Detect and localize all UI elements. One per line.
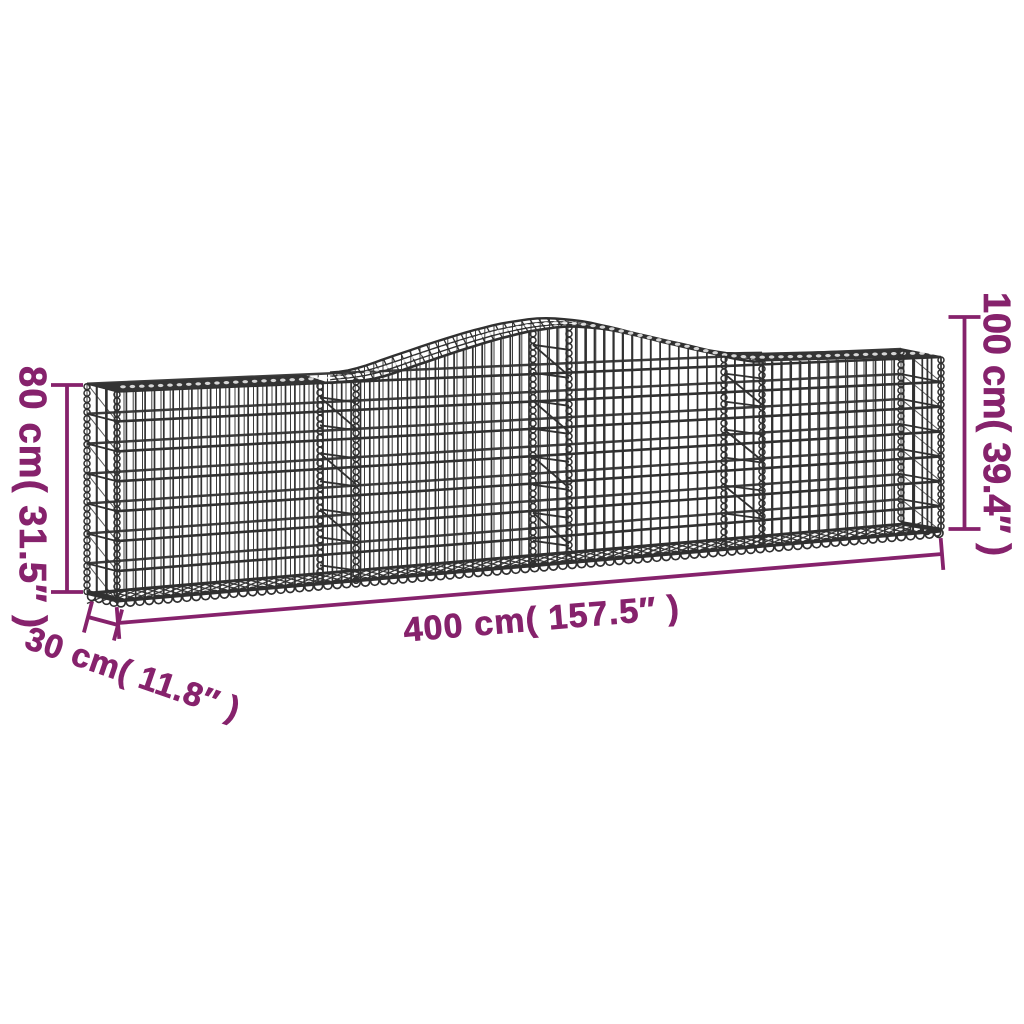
- svg-text:80 cm( 31.5″ ): 80 cm( 31.5″ ): [11, 366, 53, 628]
- svg-text:100 cm( 39.4″ ): 100 cm( 39.4″ ): [975, 292, 1017, 556]
